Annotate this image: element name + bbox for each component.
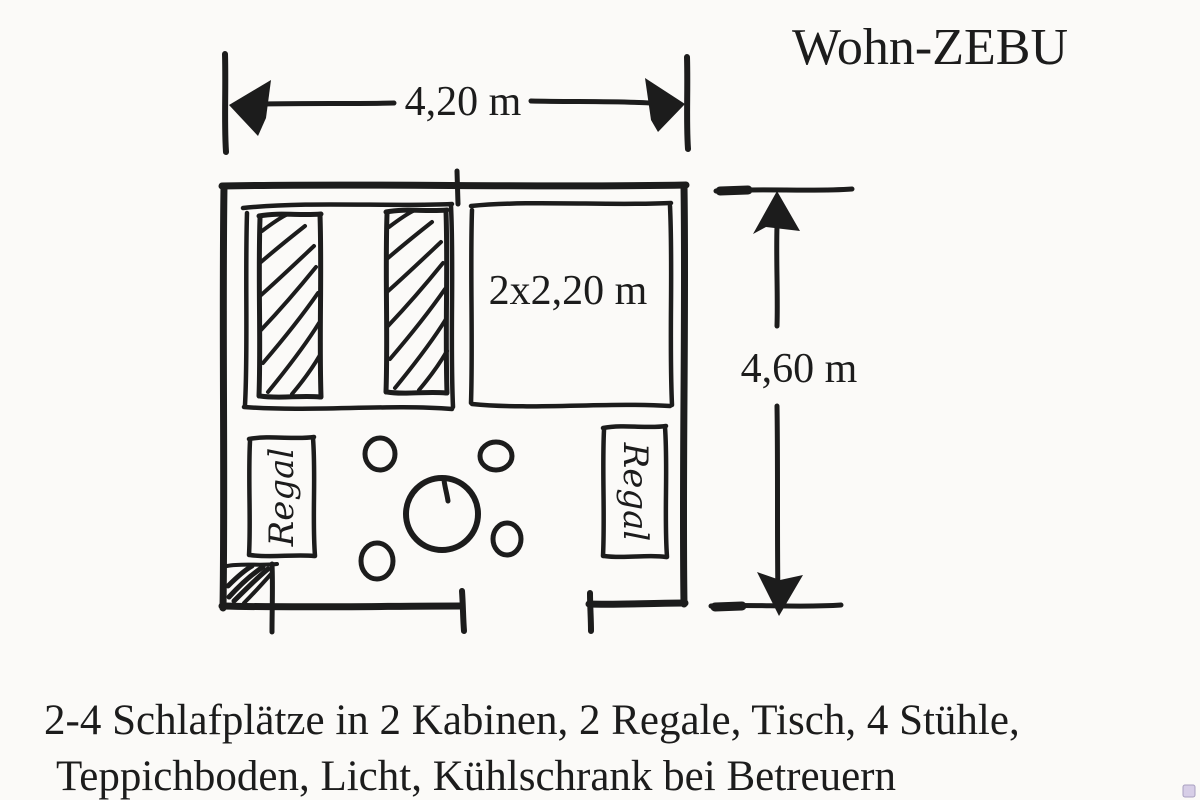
caption-line-2: Teppichboden, Licht, Kühlschrank bei Bet…	[56, 753, 896, 800]
watermark-square	[1183, 785, 1195, 797]
height-dimension: 4,60 m	[711, 189, 858, 616]
table-stem-mark	[444, 480, 448, 501]
chair-top-right	[480, 442, 512, 470]
chair-top-left	[365, 438, 395, 470]
width-dim-line-right	[531, 101, 650, 103]
bed-2	[386, 210, 447, 393]
sleeping-area-label: 2x2,20 m	[489, 268, 648, 314]
partition-top-tick	[457, 171, 458, 204]
width-dim-left-arrowhead	[229, 80, 271, 136]
height-dim-top-tick-blob	[720, 190, 748, 191]
shelf-right-label: Regal	[615, 442, 655, 542]
corner-hatch	[227, 564, 277, 632]
chair-bottom-left	[361, 543, 393, 579]
page-title: Wohn-ZEBU	[792, 19, 1068, 76]
sleeping-area: 2x2,20 m	[471, 203, 672, 406]
caption: 2-4 Schlafplätze in 2 Kabinen, 2 Regale,…	[44, 697, 1020, 800]
shelf-right: Regal	[603, 426, 667, 557]
door-jamb-right-tick	[590, 593, 591, 631]
width-dim-left-tick	[225, 54, 226, 152]
bed-1	[259, 214, 321, 397]
width-dimension: 4,20 m	[225, 54, 688, 152]
caption-line-1: 2-4 Schlafplätze in 2 Kabinen, 2 Regale,…	[44, 697, 1020, 744]
width-dim-label: 4,20 m	[405, 79, 522, 125]
table	[406, 478, 478, 550]
room-wall-bottom-right-segment	[589, 603, 685, 604]
bed-1-hatch	[260, 215, 320, 394]
width-dim-line-left	[264, 103, 394, 104]
door-jamb-left-tick	[462, 591, 464, 631]
shelf-left: Regal	[249, 437, 315, 556]
chair-bottom-right	[493, 523, 521, 555]
dining-set	[361, 438, 521, 579]
bed-2-hatch	[387, 211, 447, 390]
floor-plan-svg: Wohn-ZEBU 4,20 m 4,60 m	[0, 0, 1200, 800]
height-dim-shaft-lower	[777, 406, 778, 598]
width-dim-right-tick	[687, 57, 688, 149]
scanned-floor-plan-page: Wohn-ZEBU 4,20 m 4,60 m	[0, 0, 1200, 800]
room-wall-right	[683, 186, 684, 604]
cabin-outline	[243, 204, 453, 409]
room-wall-bottom-left-segment	[222, 606, 462, 607]
shelf-left-label: Regal	[262, 448, 302, 548]
height-dim-shaft-upper	[777, 226, 778, 326]
room-wall-top	[222, 185, 686, 186]
height-dim-bottom-tick-blob	[715, 606, 742, 607]
room-wall-left	[223, 187, 224, 608]
height-dim-label: 4,60 m	[741, 346, 858, 392]
